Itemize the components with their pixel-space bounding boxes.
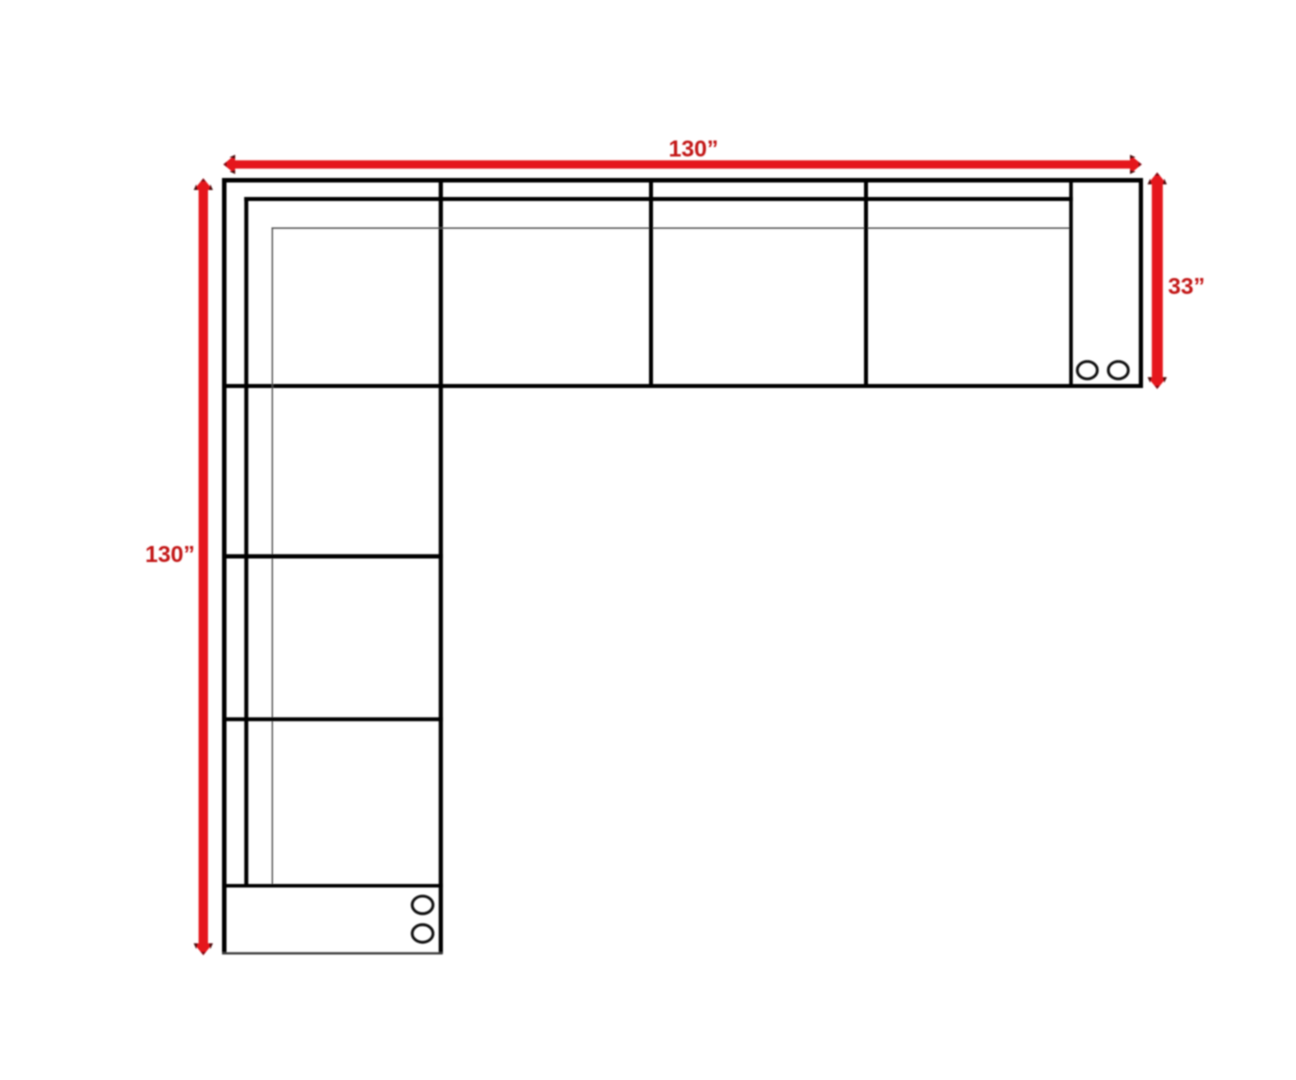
svg-text:130”: 130” [669, 136, 719, 162]
svg-text:130”: 130” [145, 541, 195, 567]
svg-text:33”: 33” [1168, 273, 1205, 299]
